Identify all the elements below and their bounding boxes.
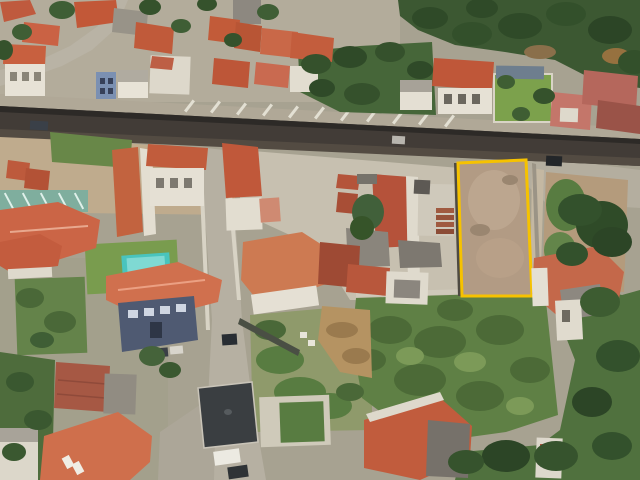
window bbox=[100, 78, 105, 84]
tree bbox=[534, 441, 578, 471]
window bbox=[22, 72, 29, 81]
parcel-dirt-light bbox=[476, 238, 524, 278]
gray-roof bbox=[414, 180, 431, 195]
tree bbox=[407, 61, 433, 79]
tree bbox=[49, 1, 75, 19]
window bbox=[10, 72, 17, 81]
tree bbox=[6, 372, 34, 392]
scrub-mottle bbox=[368, 316, 412, 344]
parcel-dirt-dark bbox=[502, 175, 518, 185]
dirt-streak bbox=[342, 348, 370, 364]
tree bbox=[588, 16, 632, 44]
scrub-mottle bbox=[437, 299, 473, 321]
tree bbox=[558, 194, 602, 226]
beehive-box bbox=[300, 332, 307, 338]
tile-stack bbox=[436, 215, 454, 220]
window bbox=[108, 78, 113, 84]
window bbox=[458, 94, 466, 104]
tree bbox=[171, 19, 191, 33]
weathered-roof bbox=[54, 362, 110, 412]
scrub-mottle bbox=[394, 364, 446, 396]
scrub-light bbox=[454, 352, 486, 372]
white-building bbox=[560, 108, 578, 123]
dirt-patch bbox=[524, 45, 556, 59]
door bbox=[562, 310, 570, 322]
scrub-light bbox=[396, 347, 424, 365]
aerial-photo bbox=[0, 0, 640, 480]
tile-stack bbox=[436, 208, 454, 213]
tree bbox=[482, 440, 530, 472]
window bbox=[176, 304, 186, 312]
garage-door bbox=[394, 280, 421, 299]
tree bbox=[16, 288, 44, 308]
gray-roof bbox=[357, 174, 377, 184]
tree bbox=[30, 332, 54, 348]
white-building bbox=[225, 197, 262, 230]
tree bbox=[533, 88, 555, 104]
tree bbox=[412, 7, 448, 29]
window bbox=[444, 94, 452, 104]
orange-roof-tall bbox=[112, 147, 143, 237]
tree bbox=[44, 311, 76, 333]
red-roof bbox=[336, 174, 360, 190]
red-roof bbox=[346, 264, 390, 296]
tile-stack bbox=[436, 229, 454, 234]
gray-roof bbox=[400, 80, 432, 92]
red-roof-long bbox=[146, 144, 208, 170]
window bbox=[184, 178, 192, 188]
gray-roof bbox=[398, 240, 442, 268]
red-roof bbox=[254, 62, 290, 88]
tree bbox=[301, 54, 331, 74]
window bbox=[128, 310, 138, 318]
car bbox=[546, 156, 563, 167]
tree bbox=[556, 242, 588, 266]
red-roof bbox=[24, 168, 50, 191]
car bbox=[392, 136, 405, 145]
tree bbox=[592, 432, 632, 460]
tree bbox=[497, 75, 515, 89]
window bbox=[160, 306, 170, 314]
gray-roof bbox=[103, 373, 136, 414]
beehive-box bbox=[308, 340, 315, 346]
tree bbox=[2, 443, 26, 461]
scrub-mottle bbox=[456, 381, 504, 411]
tile-stack bbox=[436, 222, 454, 227]
tree bbox=[592, 227, 632, 257]
car bbox=[30, 121, 48, 131]
tree bbox=[580, 287, 620, 317]
gray-roof bbox=[0, 428, 38, 442]
tree bbox=[159, 362, 181, 378]
car bbox=[170, 345, 184, 354]
pink-roof bbox=[259, 197, 281, 222]
tree bbox=[452, 22, 492, 46]
white-wall bbox=[531, 268, 548, 307]
tree bbox=[498, 13, 542, 39]
blue-building bbox=[96, 72, 116, 99]
tree bbox=[572, 387, 612, 417]
tree bbox=[139, 346, 165, 366]
tree bbox=[350, 216, 374, 240]
tree bbox=[546, 2, 586, 26]
aerial-scene-canvas bbox=[0, 0, 640, 480]
red-roof bbox=[150, 56, 174, 70]
tree bbox=[24, 410, 52, 430]
tree bbox=[512, 107, 530, 121]
window bbox=[34, 72, 41, 81]
pink-building bbox=[596, 100, 640, 134]
car bbox=[222, 333, 238, 345]
red-roof-tall bbox=[222, 143, 262, 198]
dirt-streak bbox=[326, 322, 358, 338]
scrub-mottle bbox=[476, 315, 524, 345]
roof-vent bbox=[224, 409, 232, 415]
scrub-mottle bbox=[510, 357, 550, 383]
door bbox=[150, 322, 162, 338]
tree bbox=[224, 33, 242, 47]
yard-garden bbox=[279, 401, 324, 443]
tree bbox=[12, 24, 32, 40]
window bbox=[472, 94, 480, 104]
window bbox=[170, 178, 178, 188]
tree bbox=[596, 340, 640, 372]
tree bbox=[333, 46, 367, 68]
tree bbox=[375, 42, 405, 62]
red-roof bbox=[432, 58, 494, 90]
gray-roof bbox=[118, 70, 148, 82]
red-roof bbox=[212, 58, 250, 88]
parcel-dirt-dark bbox=[470, 224, 490, 236]
window bbox=[144, 308, 154, 316]
tree bbox=[257, 4, 279, 20]
window bbox=[108, 88, 113, 94]
tree bbox=[309, 79, 335, 97]
scrub-light bbox=[506, 397, 534, 415]
tree bbox=[448, 450, 484, 474]
window bbox=[100, 88, 105, 94]
window bbox=[156, 178, 164, 188]
tree bbox=[344, 83, 380, 105]
garden-crops bbox=[336, 383, 364, 401]
